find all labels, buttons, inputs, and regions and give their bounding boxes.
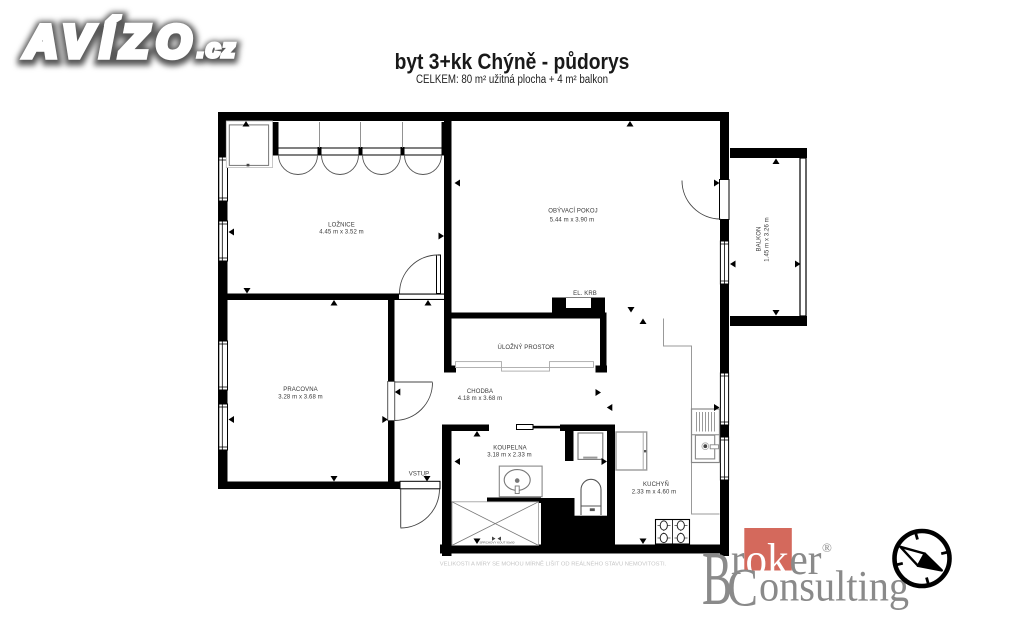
svg-text:4.18 m x 3.68 m: 4.18 m x 3.68 m	[458, 396, 503, 402]
svg-text:3.28 m x 3.68 m: 3.28 m x 3.68 m	[278, 395, 323, 401]
svg-text:2.33 m x 4.60 m: 2.33 m x 4.60 m	[632, 490, 677, 496]
svg-text:VSTUP: VSTUP	[409, 472, 430, 478]
svg-text:5.44 m x 3.90 m: 5.44 m x 3.90 m	[550, 218, 595, 224]
svg-text:®: ®	[822, 540, 832, 555]
svg-text:PRACOVNA: PRACOVNA	[283, 387, 317, 393]
svg-text:LOŽNICE: LOŽNICE	[328, 221, 355, 229]
svg-text:SPRCHOVY KOUT 90x90: SPRCHOVY KOUT 90x90	[480, 541, 515, 545]
svg-text:KOUPELNA: KOUPELNA	[493, 446, 526, 452]
svg-text:ÚLOŽNÝ PROSTOR: ÚLOŽNÝ PROSTOR	[498, 343, 556, 351]
svg-text:VELIKOSTI A MÍRY SE MOHOU MÍRN: VELIKOSTI A MÍRY SE MOHOU MÍRNĚ LIŠIT OD…	[440, 560, 667, 568]
svg-text:BALKON: BALKON	[757, 227, 763, 252]
svg-text:CHODBA: CHODBA	[467, 389, 493, 395]
svg-text:C: C	[727, 558, 758, 618]
svg-text:1.45 m x 3.26 m: 1.45 m x 3.26 m	[765, 217, 771, 262]
svg-text:EL. KRB: EL. KRB	[573, 291, 597, 297]
svg-text:3.18 m x 2.33 m: 3.18 m x 2.33 m	[487, 453, 532, 459]
svg-text:4.45 m x 3.52 m: 4.45 m x 3.52 m	[319, 230, 364, 236]
svg-text:onsulting: onsulting	[759, 564, 909, 611]
svg-text:OBÝVACÍ POKOJ: OBÝVACÍ POKOJ	[548, 208, 598, 215]
svg-text:KUCHYŇ: KUCHYŇ	[643, 481, 669, 488]
